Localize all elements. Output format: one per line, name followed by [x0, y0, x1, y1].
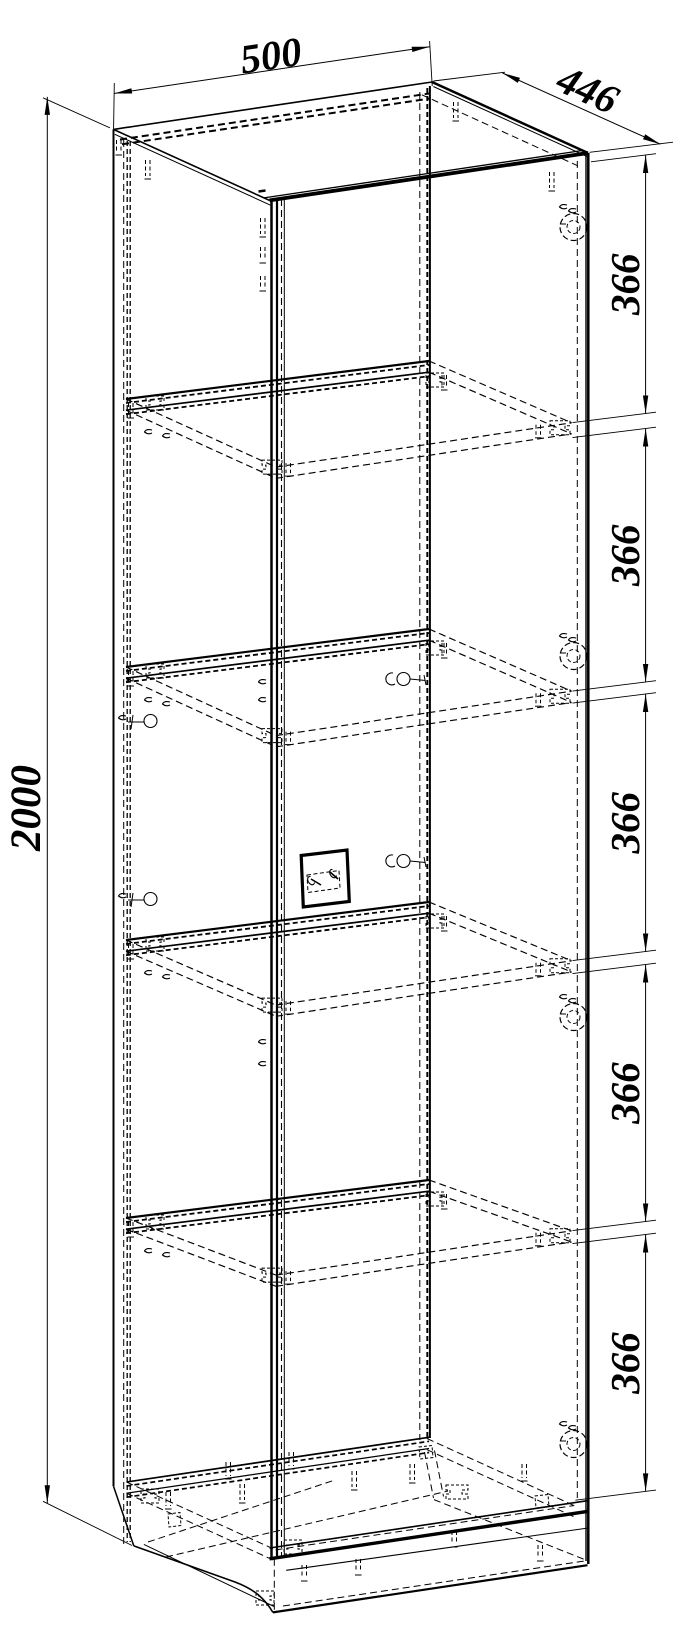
- svg-text:366: 366: [602, 524, 648, 587]
- svg-text:500: 500: [237, 28, 305, 82]
- svg-text:366: 366: [602, 792, 648, 855]
- svg-text:366: 366: [602, 1062, 648, 1125]
- svg-text:2000: 2000: [3, 765, 50, 852]
- svg-text:366: 366: [602, 1332, 648, 1395]
- svg-text:366: 366: [602, 253, 648, 316]
